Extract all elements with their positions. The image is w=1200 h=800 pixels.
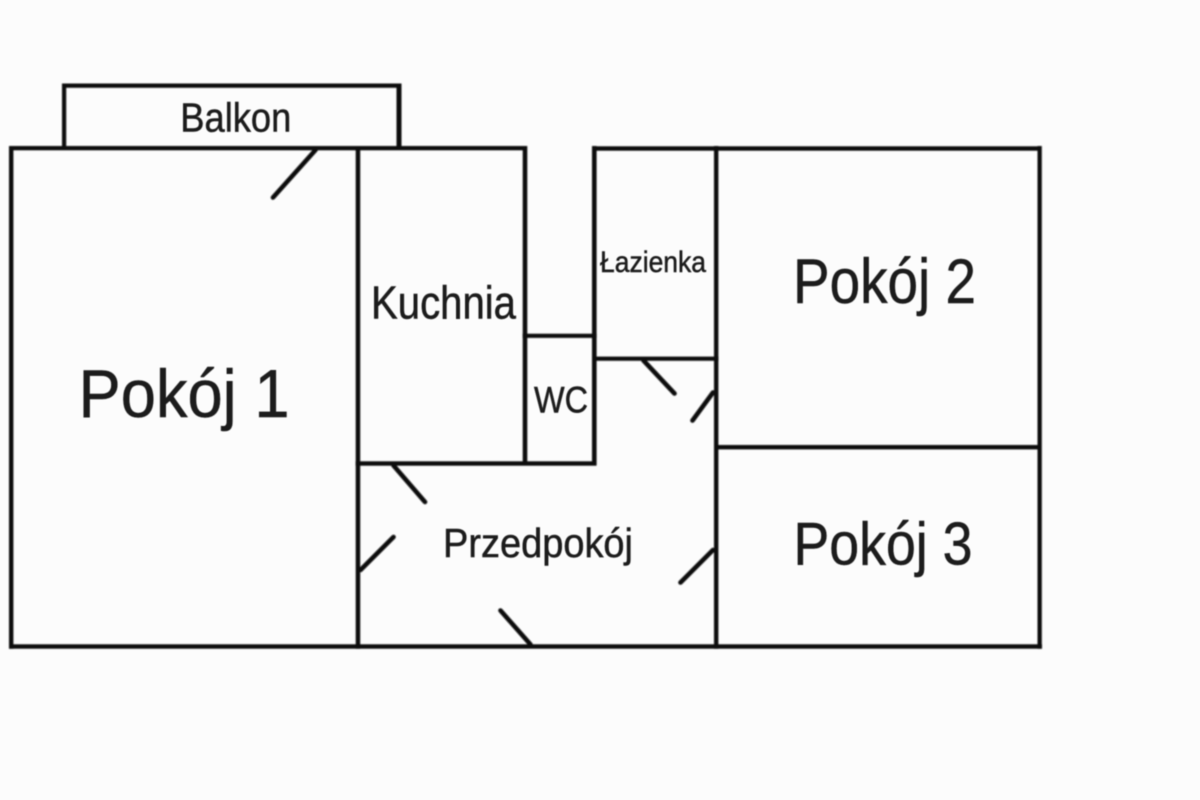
svg-text:Pokój 1: Pokój 1 (79, 356, 290, 432)
svg-text:Kuchnia: Kuchnia (371, 277, 516, 329)
svg-text:Pokój 2: Pokój 2 (793, 247, 976, 317)
svg-text:Przedpokój: Przedpokój (443, 520, 633, 566)
svg-text:WC: WC (534, 380, 588, 421)
svg-text:Łazienka: Łazienka (600, 246, 706, 279)
svg-text:Balkon: Balkon (180, 95, 291, 141)
svg-text:Pokój 3: Pokój 3 (794, 511, 973, 578)
